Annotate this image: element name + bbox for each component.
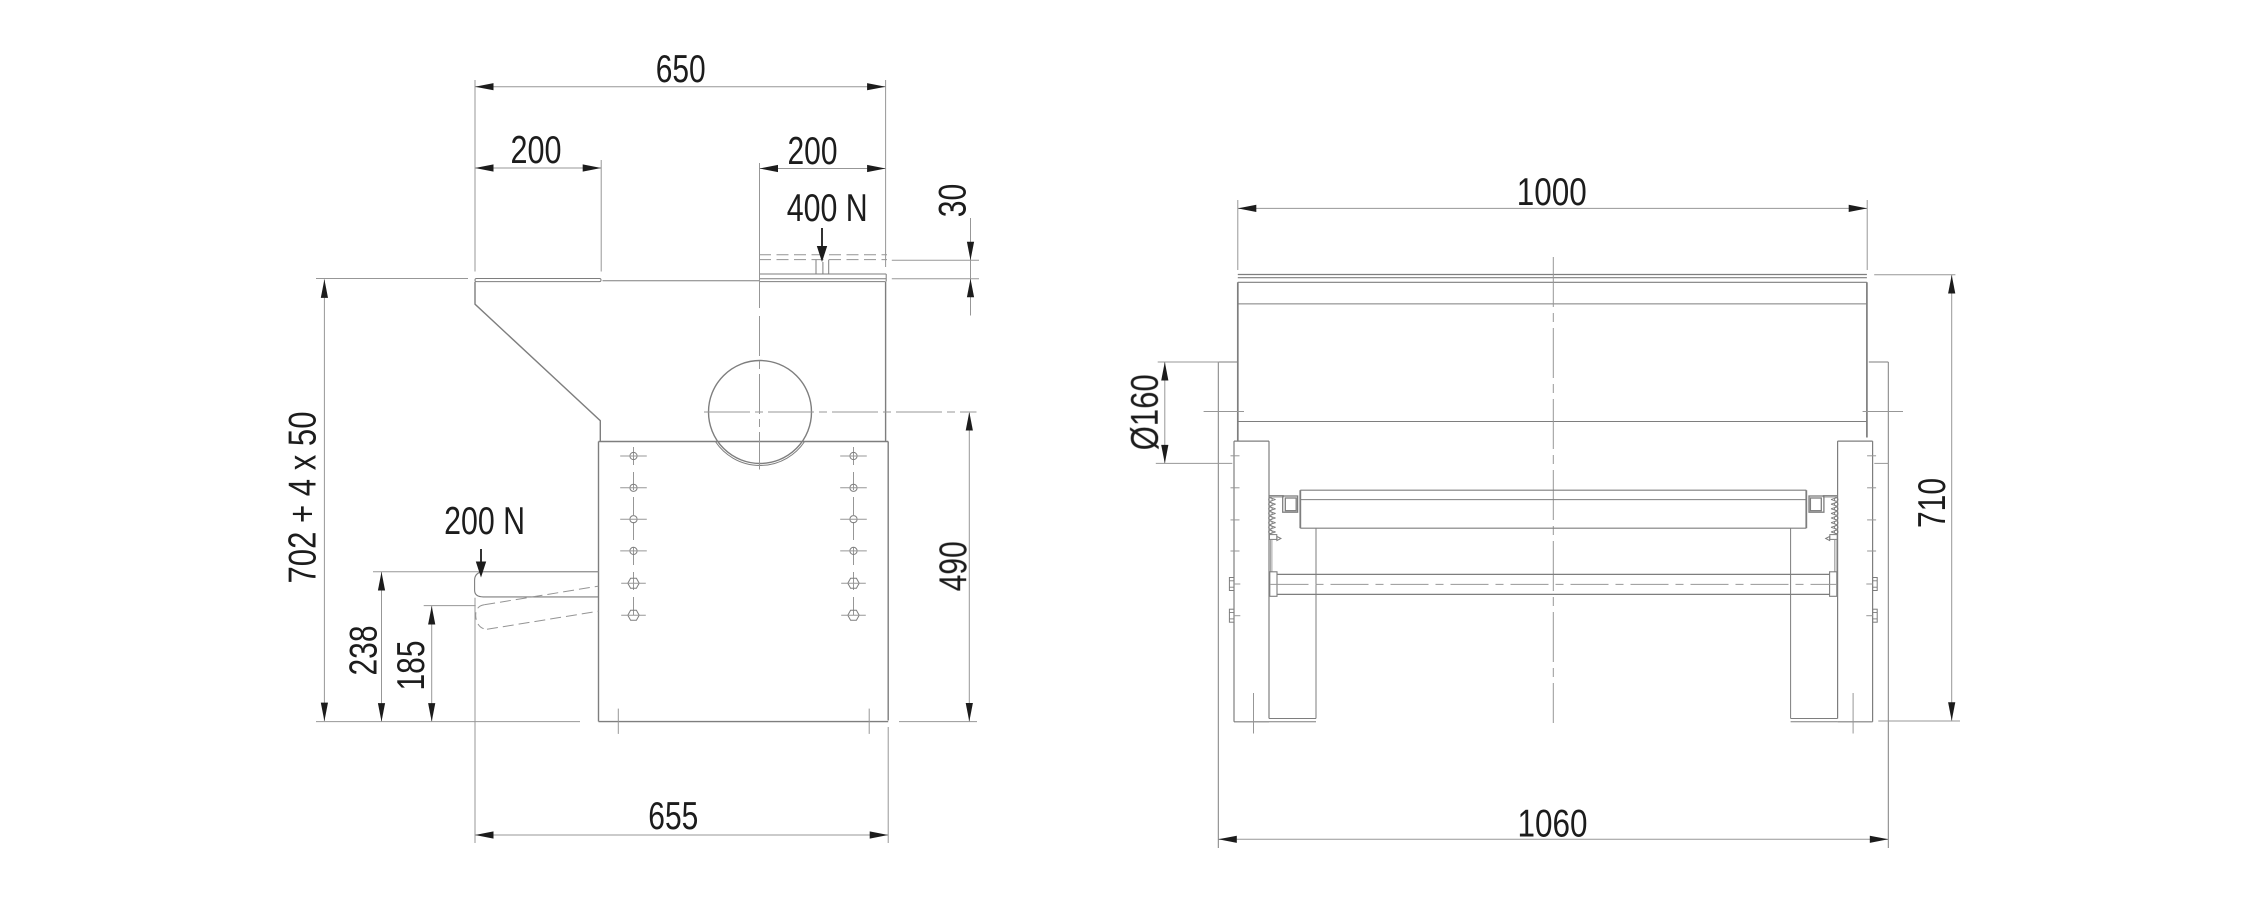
svg-text:Ø160: Ø160 xyxy=(1124,374,1167,450)
svg-text:200: 200 xyxy=(511,129,562,172)
svg-text:650: 650 xyxy=(656,48,706,91)
svg-text:702 + 4 x 50: 702 + 4 x 50 xyxy=(282,412,325,584)
svg-text:30: 30 xyxy=(932,184,975,218)
svg-text:185: 185 xyxy=(390,641,433,691)
svg-text:490: 490 xyxy=(932,541,975,591)
svg-text:655: 655 xyxy=(648,795,698,838)
svg-text:1060: 1060 xyxy=(1518,803,1588,846)
svg-text:238: 238 xyxy=(343,626,386,676)
svg-text:400 N: 400 N xyxy=(787,187,868,230)
svg-text:200 N: 200 N xyxy=(444,500,525,543)
svg-text:200: 200 xyxy=(788,130,838,173)
svg-text:710: 710 xyxy=(1911,478,1954,528)
svg-text:1000: 1000 xyxy=(1517,171,1587,214)
